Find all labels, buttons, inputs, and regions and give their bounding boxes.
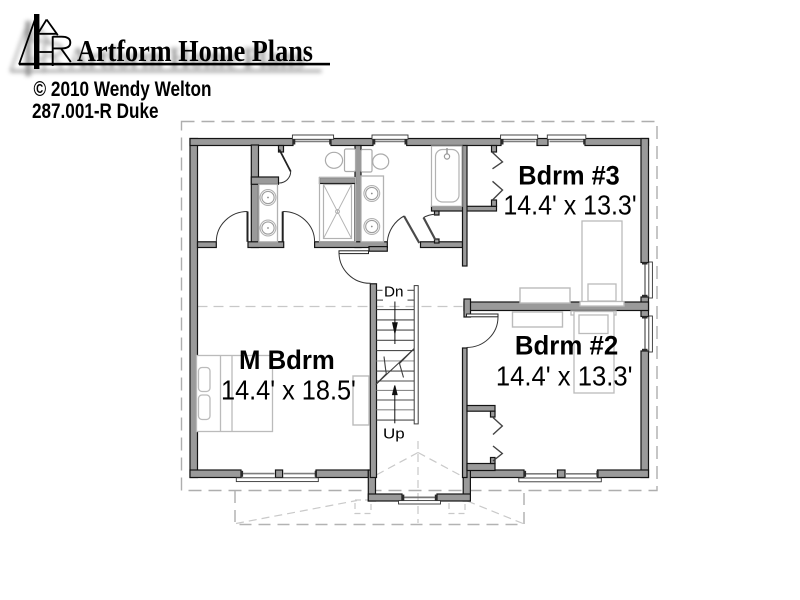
- svg-text:Bdrm #3: Bdrm #3: [518, 160, 620, 190]
- svg-text:Dn: Dn: [384, 283, 404, 300]
- svg-text:Up: Up: [383, 426, 405, 443]
- svg-text:© 2010 Wendy Welton: © 2010 Wendy Welton: [34, 78, 212, 101]
- svg-text:287.001-R Duke: 287.001-R Duke: [32, 100, 159, 123]
- svg-text:14.4' x 13.3': 14.4' x 13.3': [496, 361, 633, 392]
- svg-text:M Bdrm: M Bdrm: [239, 345, 335, 375]
- svg-text:Bdrm #2: Bdrm #2: [515, 331, 618, 361]
- svg-text:14.4' x 18.5': 14.4' x 18.5': [221, 375, 356, 406]
- svg-text:14.4' x 13.3': 14.4' x 13.3': [503, 190, 636, 221]
- svg-text:Artform Home Plans: Artform Home Plans: [77, 33, 313, 68]
